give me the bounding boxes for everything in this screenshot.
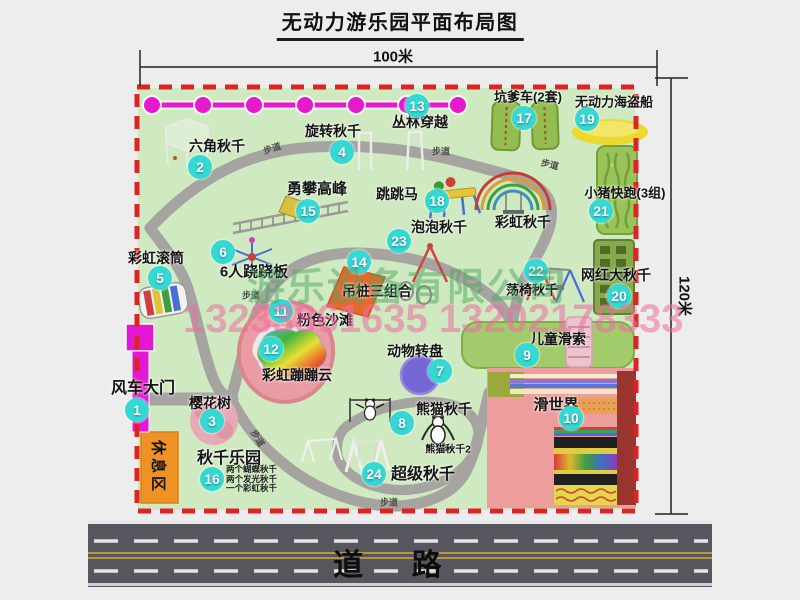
page-title: 无动力游乐园平面布局图 [277,6,524,41]
walkway-label-4: 步道 [242,289,260,302]
attraction-label-24: 超级秋千 [391,460,455,484]
attraction-label-20: 网红大秋千 [581,265,651,285]
height-dimension-label: 120米 [675,276,696,316]
rest-area-label: 休息区 [149,440,170,494]
attraction-badge-7: 7 [428,359,452,383]
attraction-badge-3: 3 [200,409,224,433]
attraction-badge-11: 11 [269,299,293,323]
attraction-badge-14: 14 [347,250,371,274]
rainbow-swing-label: 彩虹秋千 [495,212,551,232]
attraction-badge-23: 23 [387,229,411,253]
attraction-label-23: 泡泡秋千 [411,217,467,237]
attraction-badge-1: 1 [125,398,149,422]
attraction-label-14: 吊桩三组合 [342,281,412,301]
attraction-badge-9: 9 [515,343,539,367]
attraction-label-1: 风车大门 [111,374,175,398]
attraction-badge-8: 8 [390,411,414,435]
attraction-badge-15: 15 [296,199,320,223]
attraction-badge-24: 24 [362,462,386,486]
attraction-badge-20: 20 [607,284,631,308]
attraction-badge-4: 4 [330,140,354,164]
attraction-badge-2: 2 [188,155,212,179]
attraction-badge-6: 6 [211,240,235,264]
attraction-badge-19: 19 [575,107,599,131]
width-dimension-label: 100米 [373,46,413,67]
attraction-badge-17: 17 [512,106,536,130]
attraction-badge-13: 13 [405,94,429,118]
swing-park-detail-3: 一个彩虹秋千 [226,482,277,494]
walkway-label-2: 步道 [432,145,450,158]
walkway-label-6: 步道 [380,496,398,509]
attraction-label-8: 熊猫秋千 [416,399,472,419]
attraction-label-18: 跳跳马 [376,184,418,204]
road-label: 道 路 [333,540,461,584]
attraction-badge-16: 16 [200,467,224,491]
attraction-label-4: 旋转秋千 [305,121,361,141]
panda-swing2-label: 熊猫秋千2 [425,441,471,456]
attraction-badge-10: 10 [559,406,583,430]
attraction-label-9: 儿童滑索 [530,329,586,349]
attraction-label-15: 勇攀高峰 [287,178,347,199]
attraction-label-12: 彩虹蹦蹦云 [262,365,332,385]
attraction-badge-21: 21 [589,199,613,223]
attraction-label-6: 6人跷跷板 [220,261,288,282]
attraction-label-2: 六角秋千 [189,136,245,156]
slide-world-block [487,368,636,508]
attraction-label-5: 彩虹滚筒 [128,248,184,268]
attraction-badge-12: 12 [259,337,283,361]
attraction-badge-18: 18 [425,189,449,213]
attraction-badge-5: 5 [148,266,172,290]
attraction-label-11: 粉色沙滩 [297,310,353,330]
playground-plan-image: 无动力游乐园平面布局图 100米 120米 休息区 彩虹秋千 熊猫秋千2 游乐设… [0,0,800,600]
attraction-badge-22: 22 [524,259,548,283]
attraction-label-7: 动物转盘 [387,341,443,361]
attraction-label-17: 坑爹车(2套) [494,87,562,106]
